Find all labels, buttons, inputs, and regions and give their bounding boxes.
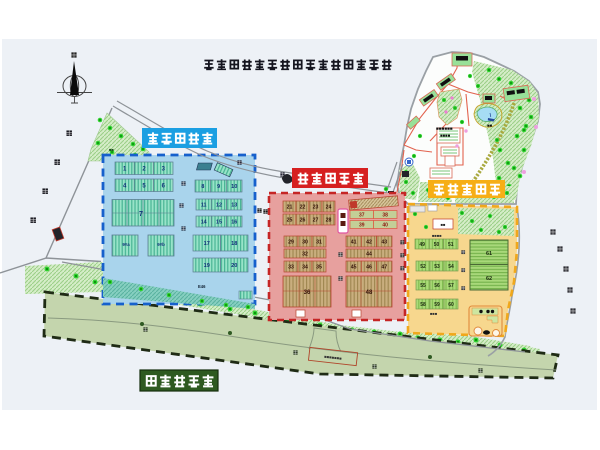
- svg-text:43: 43: [381, 239, 387, 245]
- svg-text:38: 38: [382, 212, 388, 218]
- svg-text:32: 32: [302, 251, 308, 257]
- svg-text:58: 58: [420, 302, 426, 308]
- svg-text:16: 16: [231, 219, 237, 225]
- svg-text:■■: ■■: [441, 222, 446, 227]
- svg-text:53: 53: [434, 264, 440, 270]
- svg-text:31: 31: [316, 239, 322, 245]
- svg-text:62: 62: [486, 276, 492, 282]
- svg-text:54: 54: [448, 264, 454, 270]
- svg-text:15: 15: [216, 219, 222, 225]
- svg-text:■■■■: ■■■■: [440, 133, 451, 138]
- svg-text:37: 37: [359, 212, 365, 218]
- svg-text:18: 18: [231, 241, 237, 247]
- svg-text:59: 59: [434, 302, 440, 308]
- svg-text:9#b: 9#b: [157, 242, 165, 247]
- svg-text:29: 29: [288, 239, 294, 245]
- svg-text:19: 19: [204, 263, 210, 269]
- svg-text:41: 41: [351, 239, 357, 245]
- svg-text:36: 36: [304, 290, 311, 296]
- svg-text:28: 28: [326, 217, 332, 223]
- svg-text:14: 14: [201, 219, 207, 225]
- svg-text:51: 51: [448, 242, 454, 248]
- svg-text:7: 7: [139, 211, 143, 218]
- svg-text:61: 61: [486, 251, 492, 257]
- svg-text:8: 8: [201, 184, 204, 190]
- svg-text:30: 30: [302, 239, 308, 245]
- svg-text:E46: E46: [198, 284, 206, 289]
- svg-text:■■■: ■■■: [430, 311, 438, 316]
- svg-text:■■: ■■: [487, 123, 493, 128]
- svg-text:■■■■■■: ■■■■■■: [436, 126, 453, 131]
- svg-text:46: 46: [366, 264, 372, 270]
- svg-text:11: 11: [201, 202, 207, 208]
- svg-text:22: 22: [300, 204, 306, 210]
- svg-text:21: 21: [287, 204, 293, 210]
- svg-text:9#a: 9#a: [122, 242, 130, 247]
- svg-text:27: 27: [313, 217, 319, 223]
- svg-text:26: 26: [300, 217, 306, 223]
- svg-text:17: 17: [204, 241, 210, 247]
- svg-text:55: 55: [420, 283, 426, 289]
- svg-text:52: 52: [420, 264, 426, 270]
- svg-text:35: 35: [316, 264, 322, 270]
- svg-text:9: 9: [217, 184, 220, 190]
- svg-text:47: 47: [381, 264, 387, 270]
- svg-text:42: 42: [366, 239, 372, 245]
- svg-text:50: 50: [434, 242, 440, 248]
- svg-text:49: 49: [419, 242, 425, 248]
- svg-text:57: 57: [448, 283, 454, 289]
- svg-text:25: 25: [287, 217, 293, 223]
- svg-text:13: 13: [231, 202, 237, 208]
- svg-text:34: 34: [302, 264, 308, 270]
- svg-text:40: 40: [382, 222, 388, 228]
- svg-text:44: 44: [366, 251, 372, 257]
- svg-text:■■: ■■: [109, 147, 114, 152]
- svg-text:■■■■: ■■■■: [432, 233, 442, 238]
- svg-text:10: 10: [231, 184, 237, 190]
- svg-text:60: 60: [448, 302, 454, 308]
- svg-text:56: 56: [434, 283, 440, 289]
- svg-text:39: 39: [359, 222, 365, 228]
- svg-text:20: 20: [231, 263, 237, 269]
- svg-text:12: 12: [216, 202, 222, 208]
- svg-text:24: 24: [326, 204, 332, 210]
- svg-text:33: 33: [288, 264, 294, 270]
- svg-text:45: 45: [351, 264, 357, 270]
- svg-text:23: 23: [313, 204, 319, 210]
- svg-text:48: 48: [366, 290, 373, 296]
